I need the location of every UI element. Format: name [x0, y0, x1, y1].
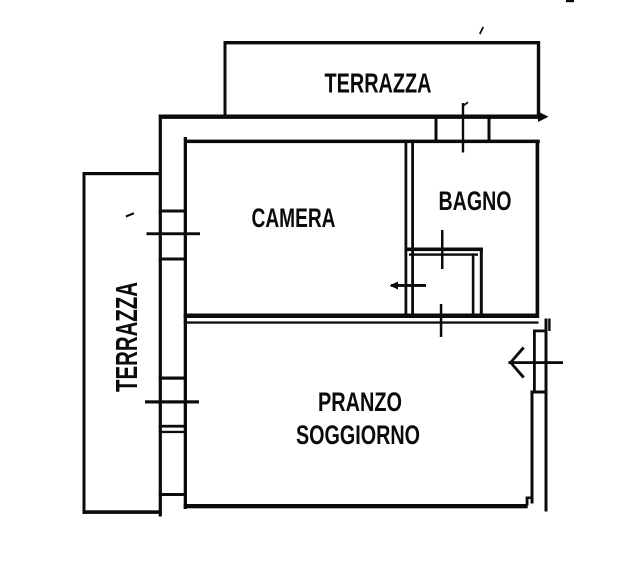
svg-text:SOGGIORNO: SOGGIORNO [296, 420, 420, 450]
svg-text:BAGNO: BAGNO [439, 186, 512, 216]
svg-text:TERRAZZA: TERRAZZA [325, 68, 432, 99]
svg-text:TERRAZZA: TERRAZZA [109, 282, 144, 392]
svg-text:CAMERA: CAMERA [252, 203, 336, 233]
svg-text:PRANZO: PRANZO [318, 387, 402, 417]
